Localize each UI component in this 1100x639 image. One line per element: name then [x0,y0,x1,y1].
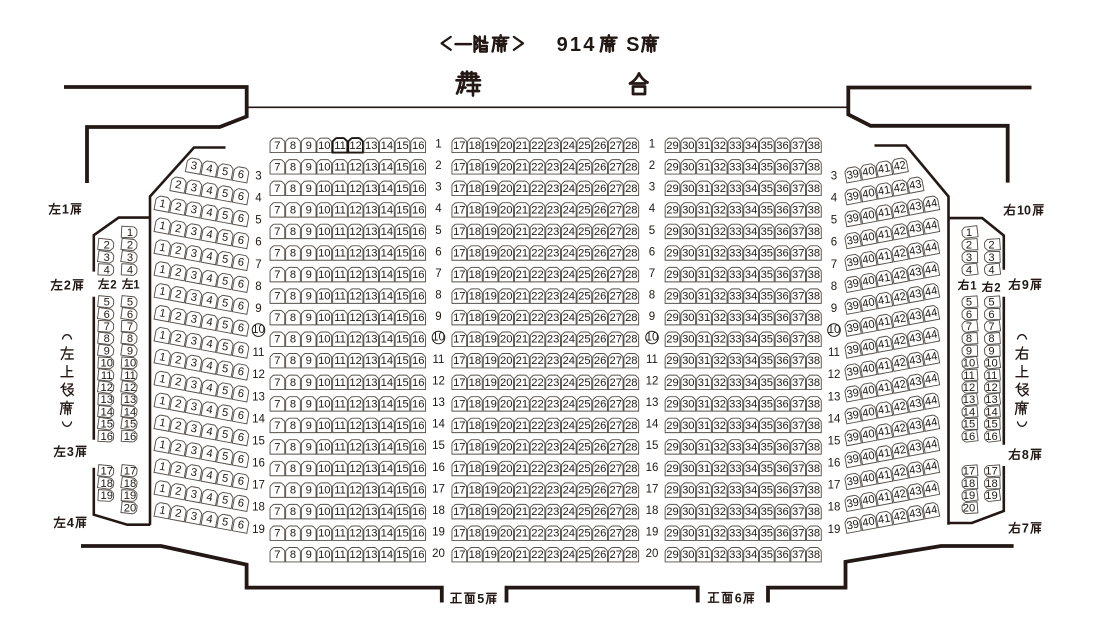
svg-text:23: 23 [547,269,559,281]
svg-text:26: 26 [594,441,606,453]
svg-text:25: 25 [578,420,590,432]
svg-text:42: 42 [893,334,907,348]
svg-text:8: 8 [290,161,296,173]
svg-text:7: 7 [1022,521,1029,535]
svg-text:16: 16 [412,269,424,281]
svg-text:40: 40 [861,494,875,508]
svg-text:28: 28 [625,463,637,475]
svg-text:36: 36 [776,204,788,216]
svg-text:37: 37 [792,183,804,195]
svg-text:41: 41 [877,250,891,264]
svg-text:16: 16 [412,226,424,238]
svg-text:11: 11 [334,398,346,410]
svg-text:30: 30 [682,291,694,303]
svg-text:23: 23 [547,291,559,303]
svg-text:13: 13 [365,441,377,453]
svg-text:S: S [626,34,639,56]
svg-text:15: 15 [396,183,408,195]
svg-text:15: 15 [963,419,975,431]
svg-text:34: 34 [745,161,757,173]
svg-text:15: 15 [396,398,408,410]
svg-text:11: 11 [253,347,265,359]
svg-text:15: 15 [124,419,136,431]
svg-text:18: 18 [469,528,481,540]
svg-text:29: 29 [666,183,678,195]
svg-text:34: 34 [745,183,757,195]
svg-text:16: 16 [412,291,424,303]
svg-text:26: 26 [594,334,606,346]
svg-text:26: 26 [594,398,606,410]
svg-text:20: 20 [500,485,512,497]
svg-text:10: 10 [318,377,330,389]
svg-text:2: 2 [649,160,655,172]
svg-text:7: 7 [966,321,972,333]
svg-text:19: 19 [100,490,112,502]
svg-text:44: 44 [924,219,938,233]
svg-text:23: 23 [547,183,559,195]
svg-text:30: 30 [682,312,694,324]
svg-text:15: 15 [396,140,408,152]
svg-text:17: 17 [453,377,465,389]
svg-text:23: 23 [547,140,559,152]
svg-text:15: 15 [396,269,408,281]
svg-text:24: 24 [563,269,575,281]
svg-text:11: 11 [334,420,346,432]
svg-text:43: 43 [908,397,922,411]
svg-text:6: 6 [127,309,133,321]
svg-text:35: 35 [761,226,773,238]
svg-text:11: 11 [334,269,346,281]
svg-text:19: 19 [484,140,496,152]
svg-text:34: 34 [745,248,757,260]
svg-text:36: 36 [776,226,788,238]
svg-text:42: 42 [893,181,907,195]
svg-text:15: 15 [396,334,408,346]
svg-text:15: 15 [396,441,408,453]
svg-text:30: 30 [682,528,694,540]
svg-text:21: 21 [516,291,528,303]
svg-text:37: 37 [792,291,804,303]
svg-text:19: 19 [432,527,445,539]
svg-text:12: 12 [349,312,361,324]
svg-text:9: 9 [1022,278,1029,292]
svg-text:5: 5 [966,297,972,309]
svg-text:2: 2 [994,283,1000,295]
svg-text:4: 4 [127,264,133,276]
svg-text:19: 19 [484,463,496,475]
svg-text:28: 28 [625,377,637,389]
svg-text:32: 32 [713,506,725,518]
svg-text:22: 22 [531,269,543,281]
svg-text:7: 7 [274,549,280,561]
svg-text:40: 40 [861,318,875,332]
svg-text:31: 31 [698,334,710,346]
svg-text:16: 16 [646,462,659,474]
svg-text:9: 9 [306,398,312,410]
svg-text:23: 23 [547,398,559,410]
svg-text:41: 41 [877,425,891,439]
svg-text:22: 22 [531,528,543,540]
svg-text:31: 31 [698,204,710,216]
svg-text:19: 19 [484,420,496,432]
svg-text:23: 23 [547,420,559,432]
svg-text:8: 8 [290,226,296,238]
svg-text:11: 11 [334,441,346,453]
svg-text:3: 3 [104,252,110,264]
svg-text:17: 17 [453,420,465,432]
svg-text:29: 29 [666,291,678,303]
svg-text:22: 22 [531,248,543,260]
svg-text:22: 22 [531,161,543,173]
svg-text:37: 37 [792,398,804,410]
svg-text:9: 9 [306,161,312,173]
svg-text:10: 10 [318,398,330,410]
svg-text:4: 4 [104,264,110,276]
svg-text:20: 20 [500,248,512,260]
svg-text:16: 16 [412,398,424,410]
svg-text:43: 43 [908,288,922,302]
svg-text:26: 26 [594,269,606,281]
svg-text:41: 41 [877,337,891,351]
svg-text:34: 34 [745,506,757,518]
svg-text:32: 32 [713,377,725,389]
svg-text:33: 33 [729,161,741,173]
svg-text:24: 24 [563,420,575,432]
svg-text:39: 39 [846,409,860,423]
svg-text:9: 9 [306,140,312,152]
svg-text:13: 13 [365,269,377,281]
svg-text:34: 34 [745,226,757,238]
svg-text:27: 27 [609,528,621,540]
svg-text:44: 44 [924,504,938,518]
svg-text:33: 33 [729,291,741,303]
svg-text:23: 23 [547,204,559,216]
svg-text:43: 43 [908,375,922,389]
svg-text:24: 24 [563,226,575,238]
svg-text:20: 20 [124,503,136,515]
svg-text:18: 18 [469,441,481,453]
svg-text:43: 43 [908,485,922,499]
svg-text:14: 14 [381,463,393,475]
svg-text:7: 7 [274,248,280,260]
svg-text:30: 30 [682,398,694,410]
svg-text:16: 16 [412,549,424,561]
svg-text:30: 30 [682,269,694,281]
svg-text:34: 34 [745,140,757,152]
svg-text:5: 5 [988,297,994,309]
svg-text:26: 26 [594,312,606,324]
svg-text:17: 17 [453,441,465,453]
svg-text:16: 16 [432,462,445,474]
svg-text:28: 28 [625,269,637,281]
svg-text:36: 36 [776,140,788,152]
svg-text:14: 14 [432,419,445,431]
svg-text:42: 42 [893,269,907,283]
svg-text:18: 18 [469,312,481,324]
svg-text:33: 33 [729,463,741,475]
svg-text:11: 11 [334,291,346,303]
svg-text:30: 30 [682,506,694,518]
svg-text:25: 25 [578,204,590,216]
svg-text:26: 26 [594,161,606,173]
svg-text:26: 26 [594,485,606,497]
svg-text:16: 16 [412,334,424,346]
svg-text:18: 18 [432,505,445,517]
svg-text:21: 21 [516,420,528,432]
svg-text:14: 14 [381,291,393,303]
svg-text:41: 41 [877,513,891,527]
svg-text:19: 19 [484,204,496,216]
svg-text:17: 17 [453,463,465,475]
svg-text:33: 33 [729,204,741,216]
svg-text:36: 36 [776,398,788,410]
svg-text:12: 12 [349,506,361,518]
svg-text:28: 28 [625,355,637,367]
svg-text:32: 32 [713,269,725,281]
svg-text:9: 9 [306,334,312,346]
svg-text:14: 14 [381,226,393,238]
svg-text:10: 10 [318,291,330,303]
svg-text:11: 11 [101,370,113,382]
svg-text:11: 11 [334,528,346,540]
svg-text:42: 42 [893,378,907,392]
svg-text:16: 16 [412,485,424,497]
svg-text:35: 35 [761,269,773,281]
svg-text:7: 7 [831,259,837,271]
svg-text:23: 23 [547,528,559,540]
svg-text:39: 39 [846,299,860,313]
svg-text:17: 17 [453,549,465,561]
svg-text:8: 8 [290,183,296,195]
svg-text:7: 7 [274,528,280,540]
svg-text:20: 20 [963,503,975,515]
svg-text:19: 19 [484,291,496,303]
svg-text:14: 14 [381,528,393,540]
svg-text:5: 5 [477,592,484,606]
svg-text:38: 38 [808,485,820,497]
svg-text:31: 31 [698,291,710,303]
svg-text:37: 37 [792,528,804,540]
svg-text:23: 23 [547,226,559,238]
svg-text:17: 17 [453,506,465,518]
svg-text:36: 36 [776,485,788,497]
svg-text:28: 28 [625,485,637,497]
svg-text:23: 23 [547,248,559,260]
svg-text:25: 25 [578,291,590,303]
svg-text:14: 14 [381,441,393,453]
svg-text:26: 26 [594,248,606,260]
svg-text:25: 25 [578,463,590,475]
svg-text:14: 14 [124,406,136,418]
svg-text:24: 24 [563,398,575,410]
svg-text:43: 43 [908,222,922,236]
svg-text:35: 35 [761,528,773,540]
svg-text:5: 5 [649,225,655,237]
svg-text:4: 4 [649,203,656,215]
svg-text:40: 40 [861,340,875,354]
svg-text:3: 3 [966,252,972,264]
svg-text:18: 18 [469,140,481,152]
svg-text:10: 10 [318,485,330,497]
svg-text:33: 33 [729,226,741,238]
svg-text:17: 17 [432,483,445,495]
svg-text:21: 21 [516,441,528,453]
svg-text:26: 26 [594,355,606,367]
svg-text:3: 3 [831,171,837,183]
svg-text:28: 28 [625,226,637,238]
svg-text:12: 12 [349,377,361,389]
svg-text:9: 9 [306,312,312,324]
svg-text:31: 31 [698,226,710,238]
svg-text:41: 41 [877,228,891,242]
svg-text:34: 34 [745,312,757,324]
svg-text:6: 6 [435,246,441,258]
svg-text:21: 21 [516,312,528,324]
svg-text:15: 15 [396,485,408,497]
svg-text:36: 36 [776,549,788,561]
svg-text:42: 42 [893,203,907,217]
svg-text:41: 41 [877,294,891,308]
svg-text:32: 32 [713,204,725,216]
svg-text:12: 12 [349,398,361,410]
svg-text:24: 24 [563,441,575,453]
svg-text:38: 38 [808,549,820,561]
svg-text:20: 20 [500,506,512,518]
svg-text:7: 7 [988,321,994,333]
svg-text:12: 12 [349,226,361,238]
svg-text:31: 31 [698,398,710,410]
svg-text:17: 17 [453,248,465,260]
svg-text:42: 42 [893,313,907,327]
svg-text:12: 12 [432,376,445,388]
svg-text:11: 11 [646,354,658,366]
svg-text:32: 32 [713,355,725,367]
svg-text:44: 44 [924,460,938,474]
svg-text:914: 914 [557,34,597,56]
svg-text:20: 20 [500,226,512,238]
svg-text:8: 8 [966,333,972,345]
svg-text:15: 15 [646,440,659,452]
svg-text:43: 43 [908,178,922,192]
svg-text:7: 7 [435,268,441,280]
svg-text:40: 40 [861,296,875,310]
svg-text:30: 30 [682,248,694,260]
svg-text:33: 33 [729,269,741,281]
svg-text:22: 22 [531,140,543,152]
svg-text:5: 5 [435,225,441,237]
svg-text:29: 29 [666,463,678,475]
svg-text:21: 21 [516,183,528,195]
svg-text:16: 16 [412,506,424,518]
svg-text:7: 7 [104,321,110,333]
svg-text:22: 22 [531,312,543,324]
svg-text:8: 8 [290,355,296,367]
svg-text:25: 25 [578,140,590,152]
svg-text:12: 12 [349,528,361,540]
svg-text:15: 15 [396,312,408,324]
svg-text:17: 17 [453,334,465,346]
svg-text:7: 7 [274,398,280,410]
svg-text:17: 17 [453,226,465,238]
svg-text:14: 14 [381,269,393,281]
svg-text:7: 7 [274,226,280,238]
svg-text:37: 37 [792,248,804,260]
svg-text:40: 40 [861,209,875,223]
svg-text:17: 17 [453,161,465,173]
svg-text:31: 31 [698,355,710,367]
svg-text:43: 43 [908,353,922,367]
svg-text:7: 7 [274,463,280,475]
svg-text:16: 16 [412,463,424,475]
svg-text:31: 31 [698,312,710,324]
svg-text:11: 11 [433,354,445,366]
svg-text:19: 19 [124,490,136,502]
svg-text:35: 35 [761,248,773,260]
svg-text:12: 12 [349,420,361,432]
svg-text:17: 17 [646,483,659,495]
svg-text:42: 42 [893,247,907,261]
svg-text:19: 19 [484,355,496,367]
svg-text:30: 30 [682,140,694,152]
svg-text:34: 34 [745,269,757,281]
svg-text:32: 32 [713,183,725,195]
svg-text:29: 29 [666,269,678,281]
svg-text:39: 39 [846,475,860,489]
svg-text:16: 16 [412,377,424,389]
svg-text:23: 23 [547,441,559,453]
svg-text:38: 38 [808,140,820,152]
svg-text:40: 40 [861,231,875,245]
svg-text:16: 16 [412,528,424,540]
svg-text:11: 11 [334,183,346,195]
svg-text:33: 33 [729,248,741,260]
svg-text:11: 11 [334,334,346,346]
svg-text:10: 10 [318,528,330,540]
svg-text:26: 26 [594,226,606,238]
svg-text:4: 4 [831,193,838,205]
svg-text:39: 39 [846,234,860,248]
svg-text:14: 14 [381,398,393,410]
svg-text:24: 24 [563,334,575,346]
svg-text:14: 14 [381,377,393,389]
svg-text:31: 31 [698,248,710,260]
svg-text:9: 9 [306,269,312,281]
svg-text:13: 13 [365,485,377,497]
svg-text:30: 30 [682,204,694,216]
svg-text:15: 15 [396,377,408,389]
svg-text:27: 27 [609,140,621,152]
svg-text:12: 12 [349,441,361,453]
svg-text:22: 22 [531,334,543,346]
svg-text:29: 29 [666,161,678,173]
svg-text:6: 6 [966,309,972,321]
svg-text:37: 37 [792,377,804,389]
svg-text:44: 44 [924,241,938,255]
svg-text:7: 7 [274,506,280,518]
svg-text:8: 8 [290,140,296,152]
svg-text:25: 25 [578,485,590,497]
svg-text:31: 31 [698,528,710,540]
svg-text:43: 43 [908,463,922,477]
svg-text:37: 37 [792,485,804,497]
svg-text:33: 33 [729,506,741,518]
svg-text:10: 10 [318,441,330,453]
svg-text:35: 35 [761,161,773,173]
svg-text:35: 35 [761,549,773,561]
svg-text:36: 36 [776,420,788,432]
svg-text:9: 9 [306,226,312,238]
svg-text:12: 12 [349,248,361,260]
